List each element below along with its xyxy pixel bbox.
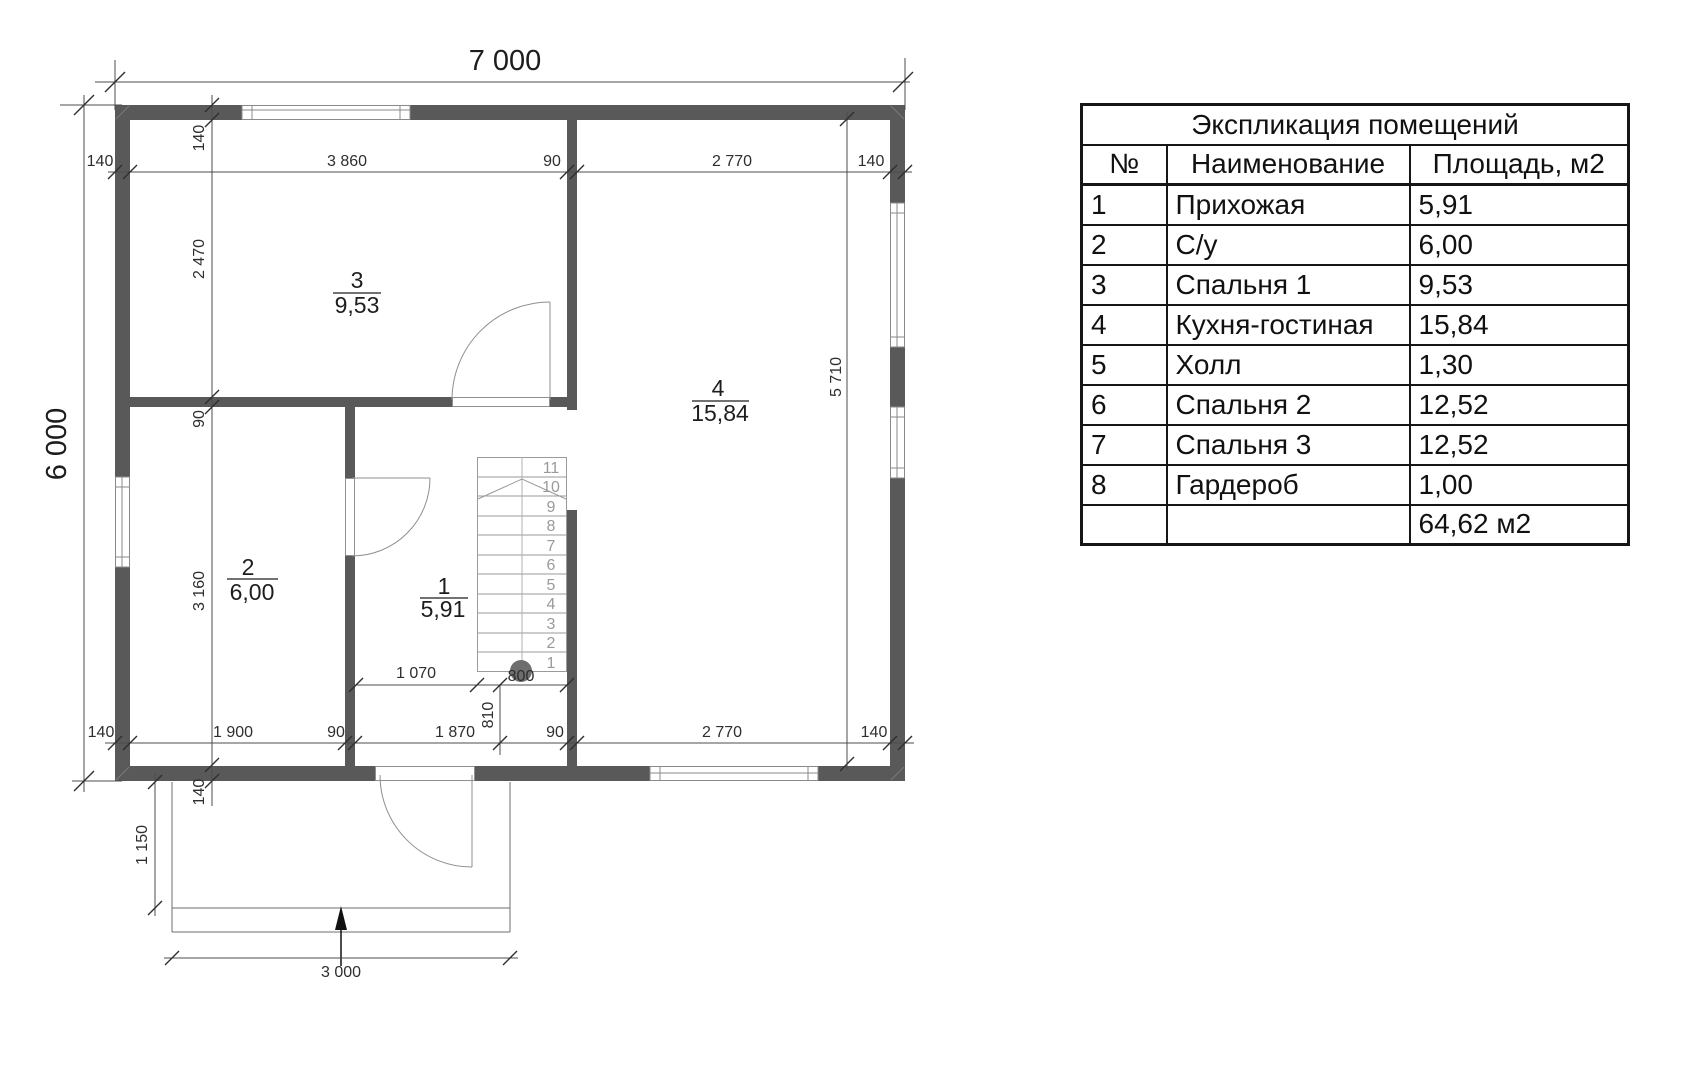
dimension-labels: 7 000 6 000 140 3 860 90 2 770 140 140 2… xyxy=(41,45,887,981)
col-header-name: Наименование xyxy=(1167,145,1410,185)
door-symbol-room3 xyxy=(452,302,550,407)
table-row: 4 Кухня-гостиная 15,84 xyxy=(1082,305,1629,345)
room-label-2: 2 6,00 xyxy=(227,554,278,605)
dimension-label: 90 xyxy=(543,153,561,170)
room-label-4: 4 15,84 xyxy=(691,375,749,426)
room-number: 2 xyxy=(242,554,255,580)
window-symbol-right-upper xyxy=(890,203,905,347)
stair-step-number: 1 xyxy=(547,655,556,672)
dimension-label: 800 xyxy=(508,668,535,685)
table-row: 6 Спальня 2 12,52 xyxy=(1082,385,1629,425)
dimension-label: 1 070 xyxy=(396,665,436,682)
col-header-area: Площадь, м2 xyxy=(1410,145,1629,185)
stair-step-number: 5 xyxy=(547,577,556,594)
window-symbol-right-lower xyxy=(890,407,905,478)
room-area: 6,00 xyxy=(230,579,275,605)
dimension-label: 140 xyxy=(858,153,885,170)
dimension-label: 2 770 xyxy=(712,153,752,170)
stair-step-number: 9 xyxy=(547,499,556,516)
window-symbol-top xyxy=(242,105,410,120)
dimension-label: 90 xyxy=(546,724,564,741)
table-header-row: № Наименование Площадь, м2 xyxy=(1082,145,1629,185)
stair-step-number: 3 xyxy=(547,616,556,633)
stair-step-number: 11 xyxy=(543,460,560,477)
room-number: 3 xyxy=(351,267,364,293)
stair-step-number: 7 xyxy=(547,538,556,555)
table-title: Экспликация помещений xyxy=(1082,105,1629,145)
dimension-label: 140 xyxy=(88,724,115,741)
room-area: 15,84 xyxy=(691,400,749,426)
dimension-label: 3 160 xyxy=(191,571,208,611)
table-total-row: 64,62 м2 xyxy=(1082,505,1629,545)
dimension-label: 90 xyxy=(327,724,345,741)
table-row: 5 Холл 1,30 xyxy=(1082,345,1629,385)
door-symbol-entrance xyxy=(376,767,475,868)
stair-step-number: 6 xyxy=(547,557,556,574)
staircase: 11 10 9 8 7 6 5 4 3 2 1 xyxy=(477,457,567,682)
stair-step-number: 8 xyxy=(547,518,556,535)
room-schedule-table: Экспликация помещений № Наименование Пло… xyxy=(1080,103,1630,546)
stair-step-number: 4 xyxy=(547,596,556,613)
dimension-label: 140 xyxy=(87,153,114,170)
stair-step-number: 2 xyxy=(547,635,556,652)
door-symbol-room2 xyxy=(346,478,431,556)
dimension-label: 6 000 xyxy=(41,408,73,481)
dimension-label: 2 770 xyxy=(702,724,742,741)
total-area: 64,62 м2 xyxy=(1410,505,1629,545)
dimension-label: 1 870 xyxy=(435,724,475,741)
room-number: 4 xyxy=(712,375,725,401)
room-label-3: 3 9,53 xyxy=(333,267,381,318)
room-area: 9,53 xyxy=(335,292,380,318)
dimension-label: 3 000 xyxy=(321,964,361,981)
dimension-label: 90 xyxy=(191,410,208,428)
dimension-label: 140 xyxy=(191,779,208,806)
room-area: 5,91 xyxy=(421,596,466,622)
window-symbol-left xyxy=(115,477,130,567)
room-schedule: Экспликация помещений № Наименование Пло… xyxy=(1080,103,1630,546)
dimension-label: 7 000 xyxy=(469,45,542,77)
entrance-arrow xyxy=(335,906,347,966)
dimension-label: 2 470 xyxy=(191,239,208,279)
room-label-1: 1 5,91 xyxy=(420,573,468,622)
dimension-label: 1 900 xyxy=(213,724,253,741)
table-row: 7 Спальня 3 12,52 xyxy=(1082,425,1629,465)
table-row: 3 Спальня 1 9,53 xyxy=(1082,265,1629,305)
col-header-number: № xyxy=(1082,145,1167,185)
stair-step-number: 10 xyxy=(542,479,560,496)
dimension-label: 3 860 xyxy=(327,153,367,170)
dimension-label: 140 xyxy=(861,724,888,741)
table-row: 2 С/у 6,00 xyxy=(1082,225,1629,265)
table-row: 1 Прихожая 5,91 xyxy=(1082,185,1629,225)
dimension-label: 140 xyxy=(191,125,208,152)
window-symbol-bottom xyxy=(650,766,818,781)
dimension-label: 810 xyxy=(480,702,497,729)
floor-plan-page: { "plan": { "overall": { "width": "7 000… xyxy=(0,0,1708,1080)
table-row: 8 Гардероб 1,00 xyxy=(1082,465,1629,505)
dimension-label: 1 150 xyxy=(134,825,151,865)
dimension-label: 5 710 xyxy=(828,357,845,397)
